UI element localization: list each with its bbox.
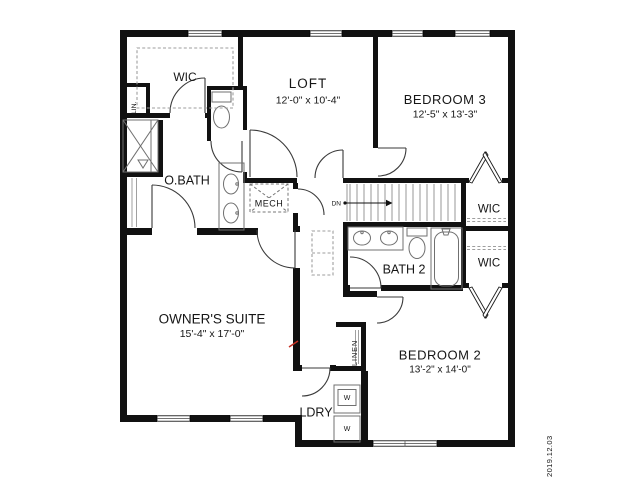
- bath2-label: BATH 2: [383, 263, 426, 277]
- wic-lower-label: WIC: [478, 258, 500, 270]
- bath2-tub: [431, 228, 462, 289]
- laundry-door: [302, 368, 330, 396]
- owners-suite-door: [257, 230, 295, 268]
- bath2-door: [350, 257, 381, 288]
- floor-plan-drawing: DN: [0, 0, 640, 480]
- loft-label: LOFT: [289, 76, 328, 91]
- owner-chase-lines: [132, 178, 137, 227]
- stairs: DN: [332, 184, 455, 221]
- wic-upper-label: WIC: [478, 204, 500, 216]
- wic-lower-rod: [467, 247, 506, 250]
- stairs-dn-label: DN: [332, 201, 342, 208]
- bedroom2-door: [377, 297, 403, 323]
- washer-dryer-boxes: [334, 385, 360, 442]
- obath-owner-door: [152, 185, 195, 228]
- bedroom2-label: BEDROOM 2: [399, 348, 482, 363]
- laundry-label: LDRY: [299, 406, 333, 420]
- shower: [123, 120, 158, 172]
- washer-bottom-label: W: [344, 426, 351, 433]
- bedroom2-dims: 13'-2" x 14'-0": [409, 365, 471, 376]
- mech-door: [298, 189, 324, 215]
- toilet-room-door: [211, 141, 242, 172]
- wic-upper-double-doors: [469, 152, 502, 183]
- obath-toilet: [212, 92, 231, 128]
- wic-master-label: WIC: [173, 70, 197, 84]
- bath2-vanity: [348, 227, 403, 250]
- linen-label: LINEN: [350, 340, 359, 366]
- owners-suite-dims: 15'-4" x 17'-0": [180, 328, 245, 340]
- owners-suite-label: OWNER'S SUITE: [159, 312, 266, 327]
- bedroom3-label: BEDROOM 3: [404, 92, 487, 107]
- bedroom3-door: [378, 148, 406, 176]
- wic-lower-double-doors: [469, 287, 502, 318]
- bedroom3-dims: 12'-5" x 13'-3": [413, 109, 478, 121]
- wic-upper-rod: [467, 219, 506, 222]
- attic-access: [312, 231, 333, 275]
- washer-top-label: W: [344, 395, 351, 402]
- obath-vanity: [219, 163, 244, 230]
- obath-hall-door: [250, 130, 297, 177]
- loft-dims: 12'-0" x 10'-4": [276, 95, 341, 107]
- lin-closet-label: LIN.: [131, 101, 138, 114]
- stair-top-door: [315, 150, 343, 178]
- floor-plan-page: DN: [0, 0, 640, 480]
- owners-bath-label: O.BATH: [164, 174, 210, 188]
- date-stamp: 2019.12.03: [545, 435, 554, 477]
- mech-label: MECH: [255, 199, 284, 209]
- bath2-toilet: [407, 228, 427, 259]
